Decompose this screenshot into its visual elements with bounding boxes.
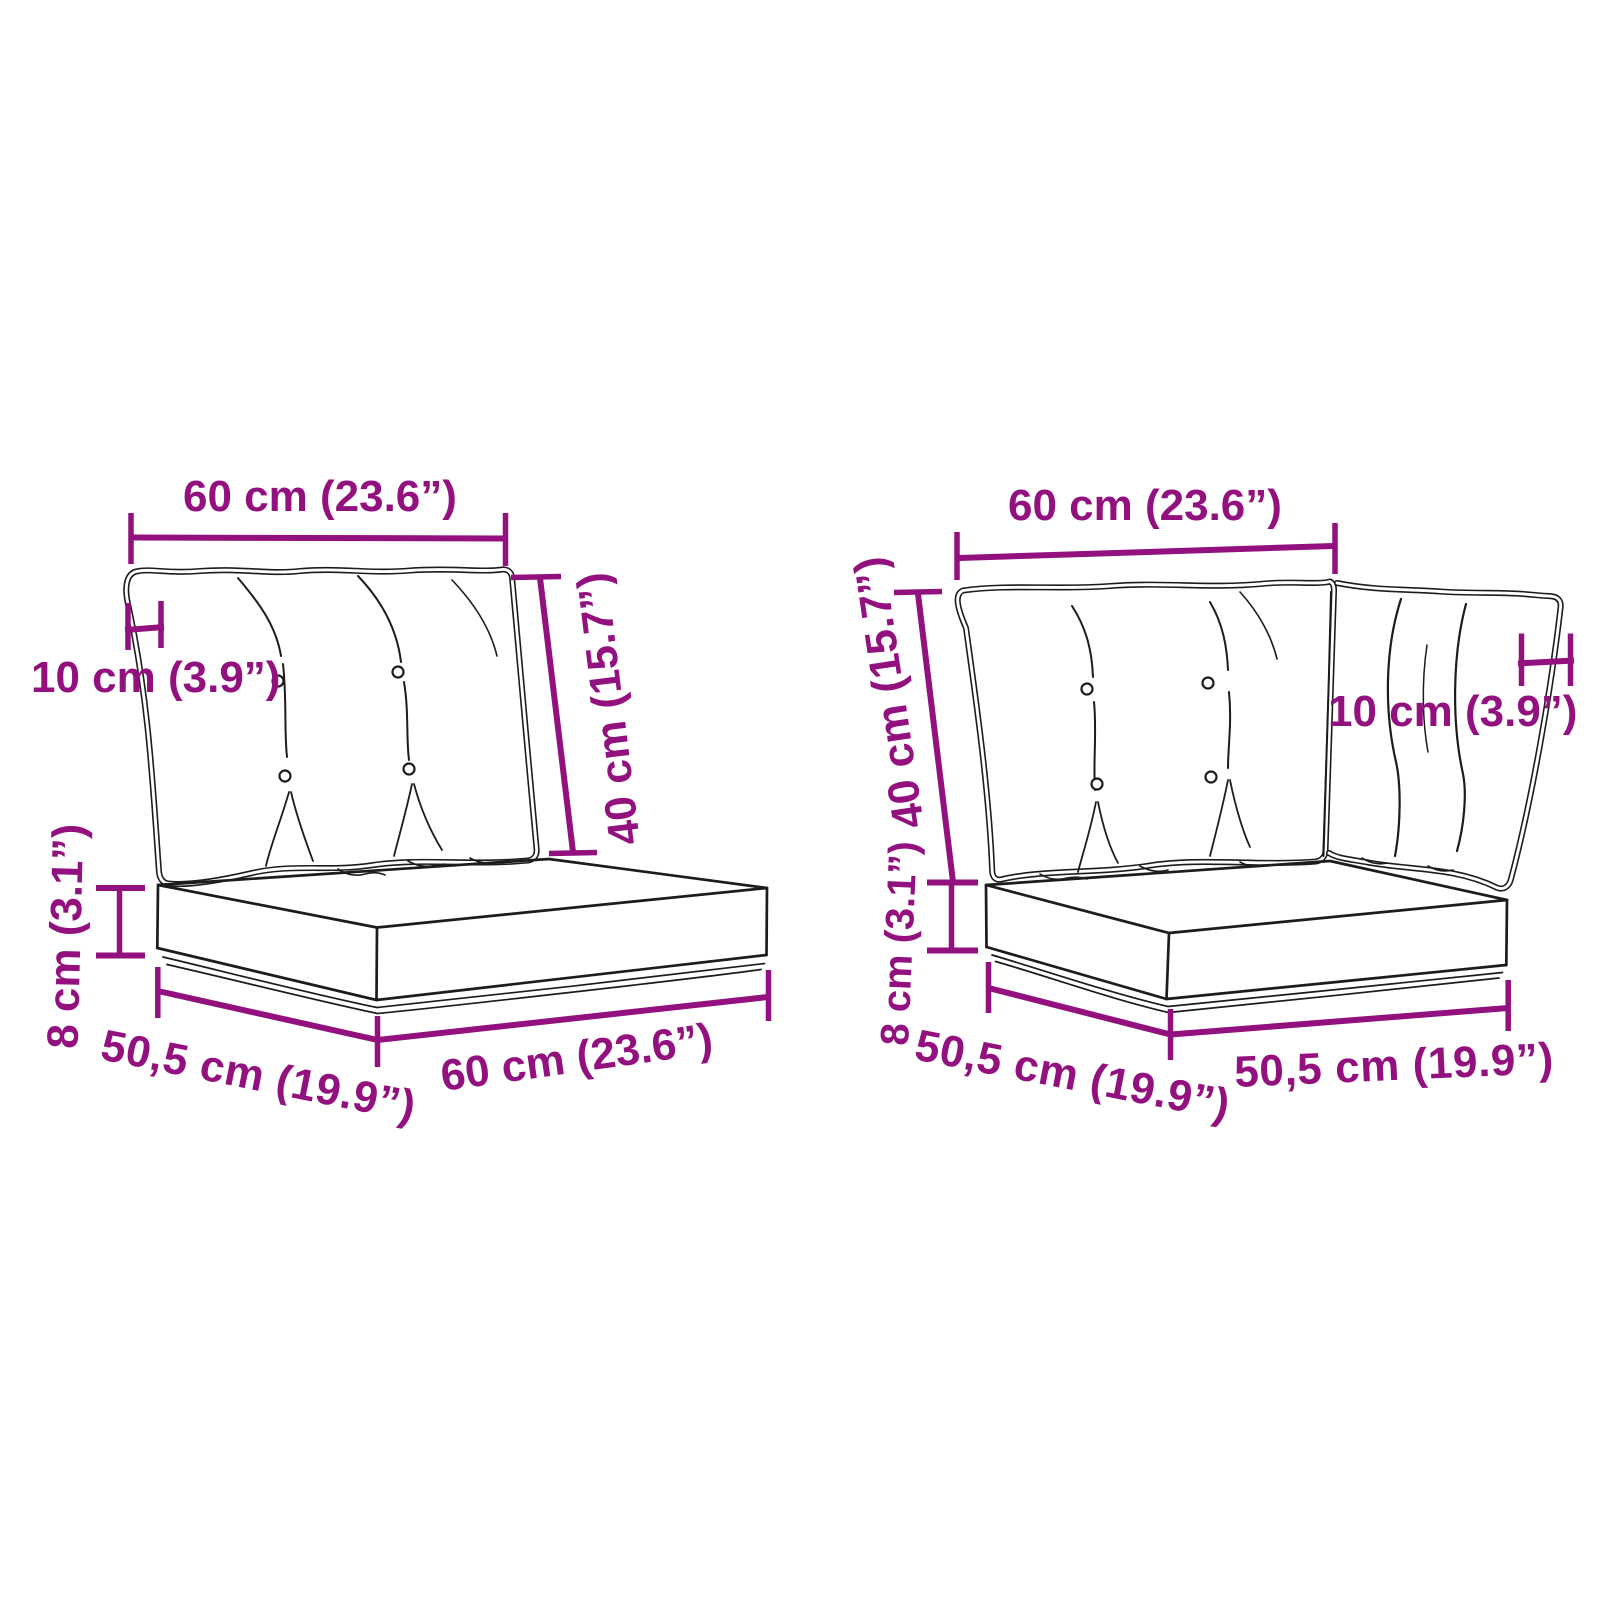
svg-text:60 cm (23.6”): 60 cm (23.6”)	[1008, 481, 1282, 530]
svg-text:8 cm (3.1”): 8 cm (3.1”)	[873, 840, 926, 1046]
svg-text:8 cm (3.1”): 8 cm (3.1”)	[39, 823, 94, 1049]
svg-text:10 cm (3.9”): 10 cm (3.9”)	[1328, 687, 1577, 736]
svg-text:50,5 cm (19.9”): 50,5 cm (19.9”)	[911, 1021, 1234, 1130]
svg-text:40 cm (15.7”): 40 cm (15.7”)	[568, 570, 650, 848]
svg-text:50,5 cm (19.9”): 50,5 cm (19.9”)	[1233, 1034, 1554, 1097]
svg-text:60 cm (23.6”): 60 cm (23.6”)	[183, 472, 457, 521]
svg-text:10 cm (3.9”): 10 cm (3.9”)	[31, 653, 280, 702]
